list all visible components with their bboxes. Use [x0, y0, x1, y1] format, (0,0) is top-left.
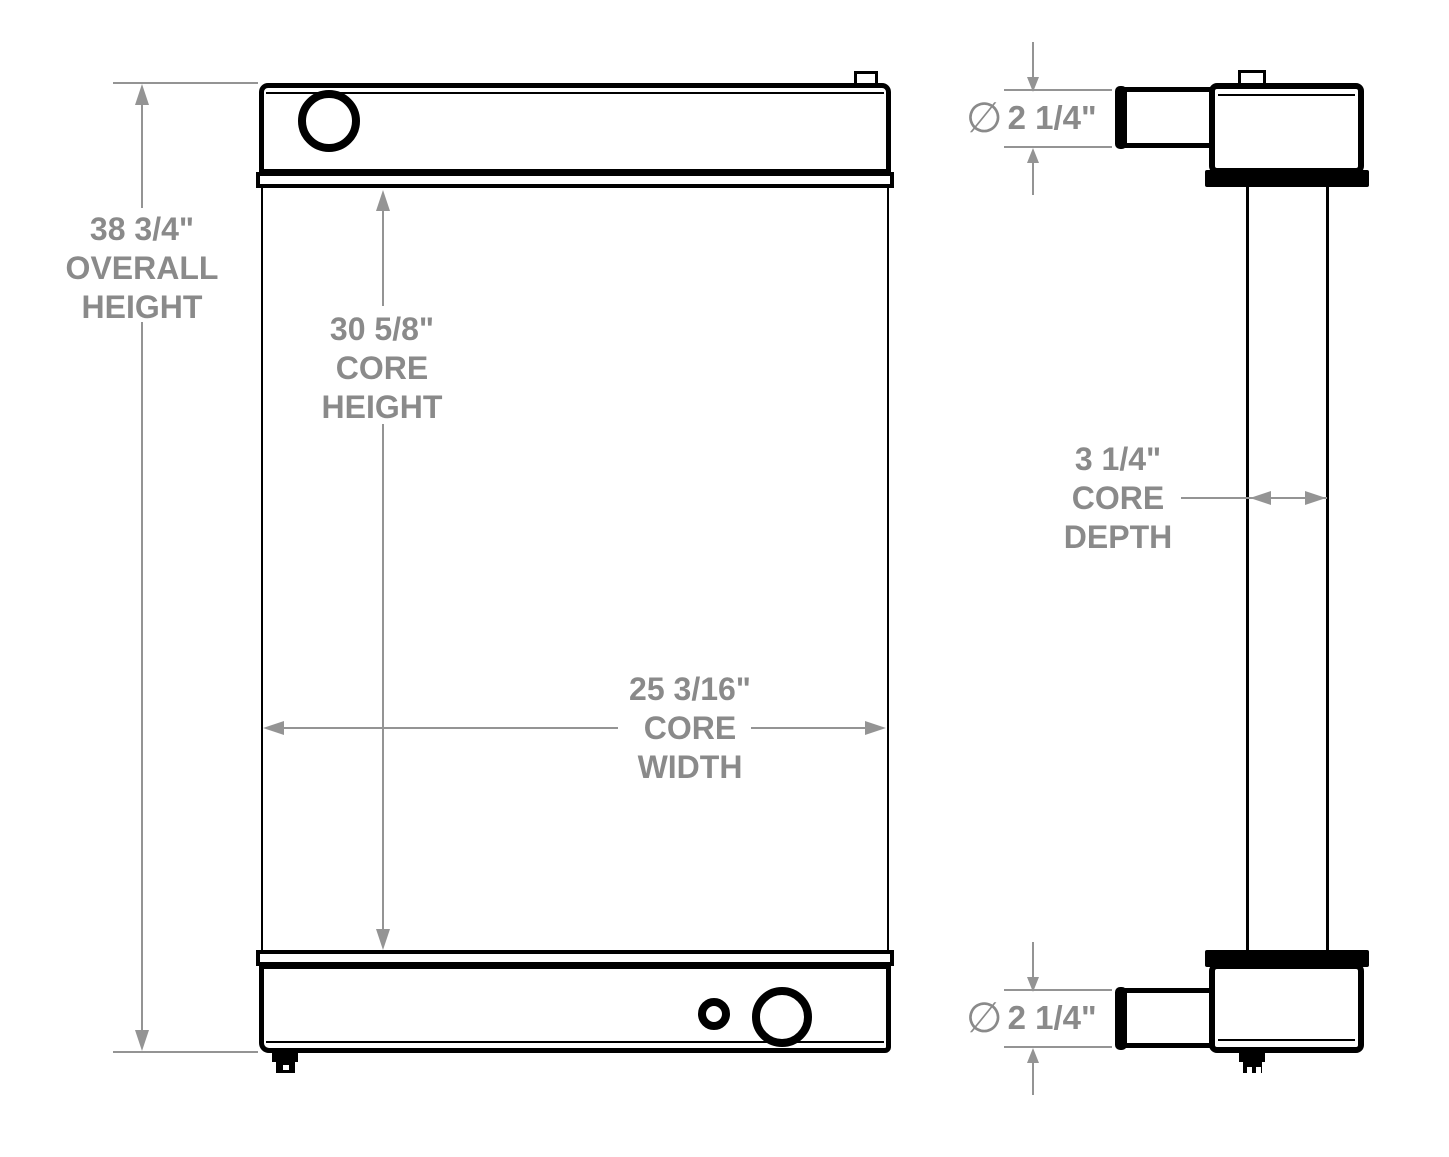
radiator-dimensional-drawing: 38 3/4" OVERALL HEIGHT 30 5/8" CORE HEIG…: [0, 0, 1449, 1157]
bottom-port-arrow-down-icon: [1027, 977, 1039, 992]
top-port-ext-line-upper: [1004, 89, 1112, 91]
top-port-ext-line-lower: [1004, 146, 1112, 148]
diameter-symbol-icon: ∅: [966, 97, 1003, 139]
core-depth-arrow-left-icon: [1250, 491, 1271, 505]
top-port-arrow-upper-tail: [1032, 42, 1034, 78]
dimension-annotations-side: ∅ 2 1/4" 3 1/4" CORE DEPTH ∅ 2 1/4": [0, 0, 1449, 1157]
bottom-port-ext-line-upper: [1004, 989, 1112, 991]
bottom-port-arrow-upper-tail: [1032, 942, 1034, 978]
core-depth-arrow-right-icon: [1305, 491, 1326, 505]
bottom-port-arrow-lower-tail: [1032, 1062, 1034, 1095]
top-port-arrow-down-icon: [1027, 77, 1039, 92]
diameter-symbol-icon: ∅: [966, 997, 1003, 1039]
bottom-port-ext-line-lower: [1004, 1046, 1112, 1048]
bottom-port-diameter-label: ∅ 2 1/4": [966, 997, 1097, 1039]
bottom-port-arrow-up-icon: [1027, 1048, 1039, 1063]
top-port-arrow-up-icon: [1027, 148, 1039, 163]
core-depth-label: 3 1/4" CORE DEPTH: [1058, 440, 1178, 557]
top-port-diameter-label: ∅ 2 1/4": [966, 97, 1097, 139]
top-port-arrow-lower-tail: [1032, 162, 1034, 195]
